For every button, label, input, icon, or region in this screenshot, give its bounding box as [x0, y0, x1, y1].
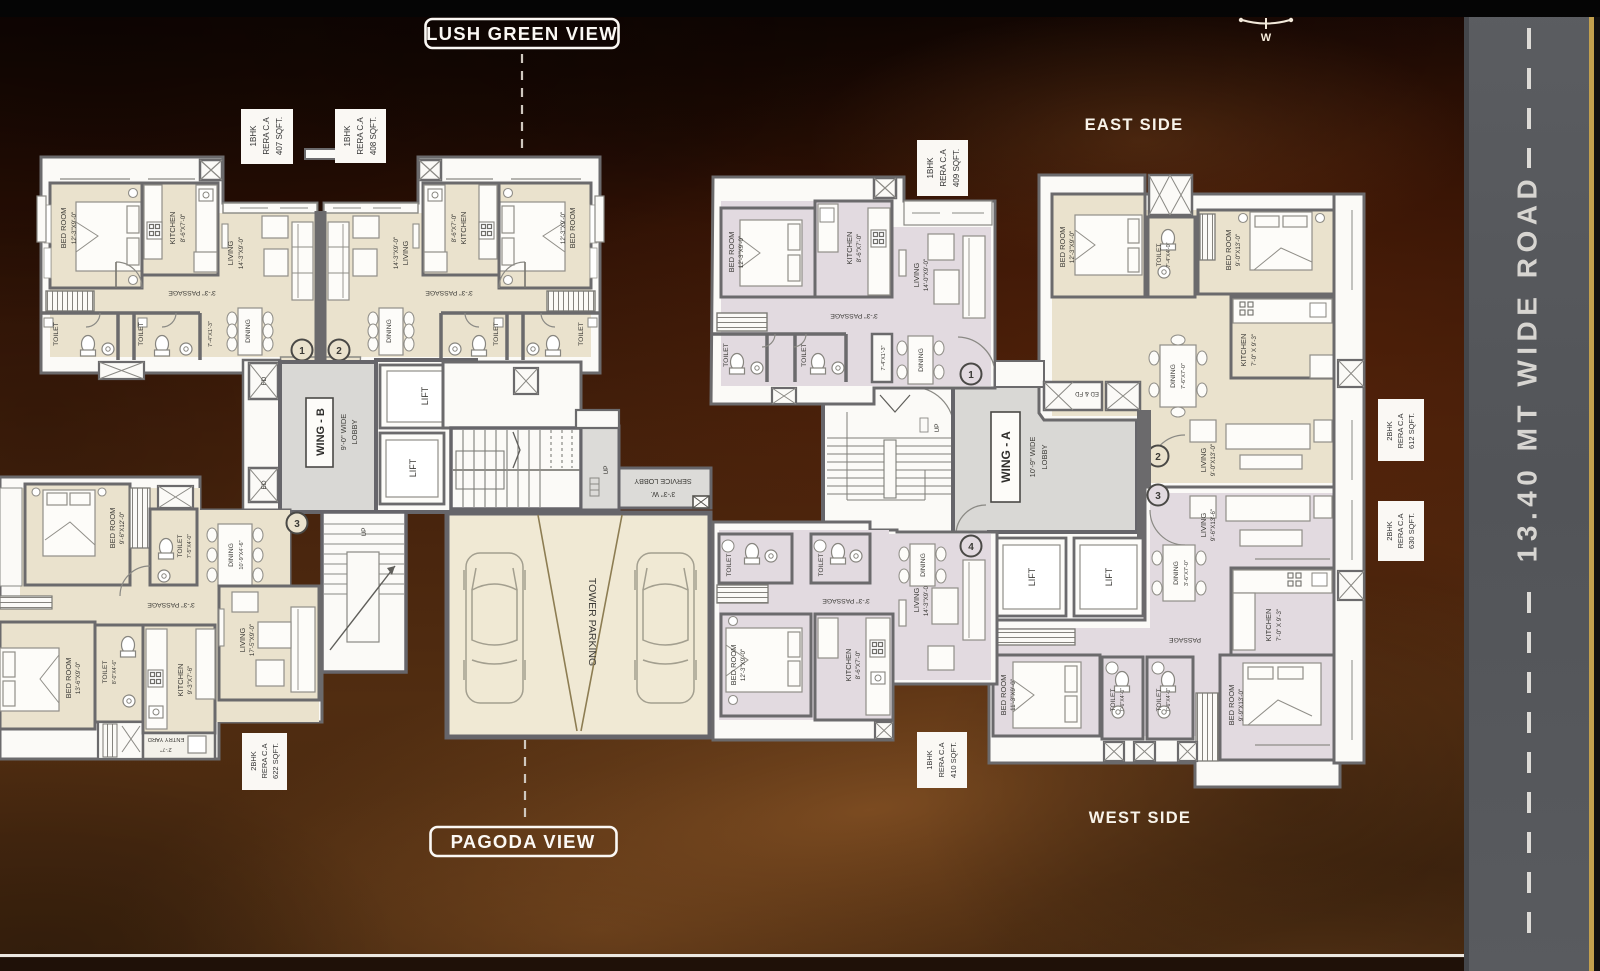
- svg-text:9'-0" WIDE: 9'-0" WIDE: [339, 414, 348, 451]
- svg-text:12'-3"X9'-0": 12'-3"X9'-0": [738, 236, 745, 268]
- svg-text:DINING: DINING: [386, 319, 393, 343]
- svg-text:13'-6"X9'-0": 13'-6"X9'-0": [75, 662, 82, 694]
- svg-text:409 SQFT.: 409 SQFT.: [952, 149, 961, 187]
- svg-text:13.40 MT WIDE ROAD: 13.40 MT WIDE ROAD: [1511, 174, 1542, 562]
- svg-text:8'-6"X7'-0": 8'-6"X7'-0": [855, 651, 862, 680]
- svg-text:3: 3: [294, 519, 300, 530]
- svg-text:7'-6"X4'-0": 7'-6"X4'-0": [1166, 688, 1172, 712]
- svg-text:RERA C.A: RERA C.A: [1396, 413, 1405, 448]
- svg-text:BED ROOM: BED ROOM: [568, 208, 577, 249]
- svg-text:2BHK: 2BHK: [249, 751, 258, 771]
- svg-text:ED: ED: [261, 480, 268, 489]
- svg-text:LIFT: LIFT: [1027, 567, 1037, 586]
- svg-text:LIFT: LIFT: [1104, 567, 1114, 586]
- svg-text:ED & FD: ED & FD: [1075, 390, 1099, 396]
- svg-text:2: 2: [336, 346, 342, 357]
- svg-text:BED ROOM: BED ROOM: [727, 232, 736, 273]
- svg-text:BED ROOM: BED ROOM: [1224, 230, 1233, 271]
- svg-text:RERA C.A: RERA C.A: [260, 743, 269, 778]
- svg-text:2BHK: 2BHK: [1385, 521, 1394, 541]
- svg-text:SERVICE LOBBY: SERVICE LOBBY: [634, 477, 692, 486]
- svg-text:1BHK: 1BHK: [926, 157, 935, 179]
- svg-text:WING - A: WING - A: [999, 431, 1013, 483]
- svg-text:3'-6"X7'-0": 3'-6"X7'-0": [1184, 560, 1190, 586]
- svg-text:TOILET: TOILET: [138, 322, 145, 346]
- svg-text:EAST SIDE: EAST SIDE: [1085, 116, 1184, 134]
- svg-text:LIVING: LIVING: [226, 241, 235, 266]
- svg-text:7'-4"X1'-3": 7'-4"X1'-3": [881, 345, 887, 370]
- svg-text:3'-3" PASSAGE: 3'-3" PASSAGE: [822, 597, 870, 604]
- svg-text:KITCHEN: KITCHEN: [845, 232, 854, 265]
- svg-text:RERA C.A: RERA C.A: [1396, 513, 1405, 548]
- svg-text:LIVING: LIVING: [238, 628, 247, 653]
- svg-text:LIVING: LIVING: [1199, 513, 1208, 538]
- svg-text:8'-6"X7'-0": 8'-6"X7'-0": [180, 214, 187, 243]
- svg-text:TOILET: TOILET: [1156, 244, 1163, 267]
- svg-text:WING - B: WING - B: [315, 408, 327, 456]
- svg-text:612 SQFT.: 612 SQFT.: [1407, 413, 1416, 449]
- svg-text:KITCHEN: KITCHEN: [459, 212, 468, 245]
- svg-text:TOILET: TOILET: [723, 343, 730, 367]
- svg-text:TOILET: TOILET: [801, 343, 808, 367]
- svg-text:11'-3"X9'-0": 11'-3"X9'-0": [1010, 679, 1017, 711]
- svg-text:9'-0"X13'-0": 9'-0"X13'-0": [1235, 234, 1242, 266]
- svg-text:TOILET: TOILET: [53, 322, 60, 346]
- svg-text:DINING: DINING: [918, 348, 925, 372]
- svg-text:W: W: [1261, 32, 1272, 44]
- svg-text:LUSH GREEN VIEW: LUSH GREEN VIEW: [426, 23, 618, 44]
- svg-text:14'-3"X9'-0": 14'-3"X9'-0": [923, 584, 930, 616]
- svg-text:TOILET: TOILET: [493, 322, 500, 346]
- svg-text:WEST SIDE: WEST SIDE: [1089, 809, 1191, 827]
- svg-text:7'-0" X 9'-3": 7'-0" X 9'-3": [1276, 609, 1283, 641]
- svg-text:12'-3"X9'-0": 12'-3"X9'-0": [1069, 231, 1076, 263]
- svg-text:KITCHEN: KITCHEN: [844, 649, 853, 682]
- svg-text:KITCHEN: KITCHEN: [1264, 609, 1273, 642]
- svg-text:BED ROOM: BED ROOM: [64, 658, 73, 699]
- svg-text:17'-5"X9'-0": 17'-5"X9'-0": [249, 624, 256, 656]
- svg-text:2BHK: 2BHK: [1385, 421, 1394, 441]
- svg-text:1: 1: [299, 346, 305, 357]
- svg-text:3'-3" PASSAGE: 3'-3" PASSAGE: [830, 312, 878, 319]
- svg-text:7'-6"X4'-0": 7'-6"X4'-0": [1120, 688, 1126, 712]
- svg-text:KITCHEN: KITCHEN: [168, 212, 177, 245]
- svg-text:630 SQFT.: 630 SQFT.: [1407, 513, 1416, 549]
- svg-text:RERA C.A: RERA C.A: [939, 149, 948, 187]
- svg-text:7'-4"X1'-3": 7'-4"X1'-3": [208, 321, 214, 347]
- svg-text:LIVING: LIVING: [1199, 448, 1208, 473]
- svg-text:PAGODA VIEW: PAGODA VIEW: [451, 831, 596, 852]
- svg-text:LIVING: LIVING: [912, 263, 921, 288]
- svg-text:12'-3"X9'-0": 12'-3"X9'-0": [740, 649, 747, 681]
- svg-text:8'-6"X7'-0": 8'-6"X7'-0": [451, 214, 458, 243]
- svg-text:UP: UP: [934, 423, 941, 432]
- svg-text:BED ROOM: BED ROOM: [1227, 685, 1236, 726]
- svg-text:1BHK: 1BHK: [925, 750, 934, 770]
- svg-text:RERA C.A: RERA C.A: [262, 117, 271, 155]
- svg-text:1BHK: 1BHK: [343, 125, 352, 147]
- svg-text:DINING: DINING: [245, 319, 252, 343]
- svg-text:TOILET: TOILET: [177, 535, 184, 558]
- svg-text:3'-3" W.: 3'-3" W.: [651, 490, 676, 499]
- svg-text:7'-4"X4'-0": 7'-4"X4'-0": [1166, 242, 1172, 267]
- svg-text:TOWER PARKING: TOWER PARKING: [586, 578, 598, 666]
- svg-text:TOILET: TOILET: [102, 661, 109, 684]
- svg-text:TOILET: TOILET: [726, 554, 733, 577]
- svg-text:12'-3"X9'-0": 12'-3"X9'-0": [560, 212, 567, 244]
- svg-text:9'-9"X13'-0": 9'-9"X13'-0": [1238, 689, 1245, 721]
- svg-text:10'-9"X4'-6": 10'-9"X4'-6": [239, 540, 245, 569]
- svg-text:3'-3" PASSAGE: 3'-3" PASSAGE: [147, 601, 195, 608]
- svg-text:3'-3" PASSAGE: 3'-3" PASSAGE: [425, 289, 473, 296]
- svg-text:LIVING: LIVING: [912, 588, 921, 613]
- svg-text:2'-7": 2'-7": [160, 746, 172, 752]
- svg-text:BED ROOM: BED ROOM: [1058, 227, 1067, 268]
- svg-text:7'-5"X4'-0": 7'-5"X4'-0": [187, 534, 193, 558]
- svg-text:DINING: DINING: [1173, 561, 1180, 585]
- svg-text:410 SQFT.: 410 SQFT.: [949, 742, 958, 778]
- svg-text:9'-6"X13'-6": 9'-6"X13'-6": [1210, 509, 1217, 541]
- svg-text:10'-9" WIDE: 10'-9" WIDE: [1028, 437, 1037, 478]
- svg-text:4: 4: [968, 542, 974, 553]
- svg-text:1: 1: [968, 370, 974, 381]
- svg-text:3: 3: [1155, 491, 1161, 502]
- svg-text:DINING: DINING: [1170, 364, 1177, 388]
- svg-text:KITCHEN: KITCHEN: [176, 664, 185, 697]
- svg-text:9'-0"X13'-0": 9'-0"X13'-0": [1210, 444, 1217, 476]
- svg-text:407 SQFT.: 407 SQFT.: [275, 117, 284, 155]
- svg-text:408 SQFT.: 408 SQFT.: [369, 117, 378, 155]
- svg-text:TOILET: TOILET: [818, 554, 825, 577]
- svg-text:1BHK: 1BHK: [249, 125, 258, 147]
- svg-text:14'-3"X9'-0": 14'-3"X9'-0": [238, 237, 245, 269]
- svg-text:LOBBY: LOBBY: [1040, 444, 1049, 469]
- svg-text:12'-3"X9'-0": 12'-3"X9'-0": [71, 212, 78, 244]
- svg-text:UP: UP: [361, 527, 368, 536]
- svg-text:BED ROOM: BED ROOM: [729, 645, 738, 686]
- svg-text:BED ROOM: BED ROOM: [999, 675, 1008, 716]
- svg-text:FD: FD: [261, 376, 268, 385]
- svg-text:TOILET: TOILET: [1156, 689, 1163, 712]
- svg-text:622 SQFT.: 622 SQFT.: [271, 743, 280, 779]
- svg-text:DINING: DINING: [228, 543, 235, 567]
- svg-text:7'-6"X7'-0": 7'-6"X7'-0": [1181, 363, 1187, 389]
- svg-text:ENTRY YARD: ENTRY YARD: [148, 736, 185, 742]
- svg-text:LOBBY: LOBBY: [350, 419, 359, 444]
- svg-text:LIFT: LIFT: [408, 458, 418, 477]
- svg-text:2: 2: [1155, 452, 1161, 463]
- svg-text:TOILET: TOILET: [1110, 689, 1117, 712]
- svg-text:UP: UP: [603, 465, 610, 474]
- svg-text:14'-3"X9'-0": 14'-3"X9'-0": [393, 237, 400, 269]
- svg-text:KITCHEN: KITCHEN: [1239, 334, 1248, 367]
- svg-text:PASSAGE: PASSAGE: [1169, 636, 1201, 643]
- svg-text:8'-6"X7'-0": 8'-6"X7'-0": [856, 234, 863, 263]
- svg-text:8'-0"X4'-6": 8'-0"X4'-6": [112, 660, 118, 684]
- svg-text:BED ROOM: BED ROOM: [59, 208, 68, 249]
- svg-text:LIVING: LIVING: [401, 241, 410, 266]
- svg-text:7'-0" X 9'-3": 7'-0" X 9'-3": [1251, 334, 1258, 366]
- svg-text:BED ROOM: BED ROOM: [108, 508, 117, 549]
- svg-text:TOILET: TOILET: [578, 322, 585, 346]
- svg-text:3'-3" PASSAGE: 3'-3" PASSAGE: [168, 289, 216, 296]
- svg-text:14'-0"X9'-0": 14'-0"X9'-0": [923, 259, 930, 291]
- svg-text:LIFT: LIFT: [420, 386, 430, 405]
- svg-text:RERA C.A: RERA C.A: [356, 117, 365, 155]
- svg-text:9'-3"X7'-6": 9'-3"X7'-6": [187, 666, 194, 695]
- svg-text:RERA C.A: RERA C.A: [937, 742, 946, 777]
- svg-text:9'-6"X12'-0": 9'-6"X12'-0": [119, 512, 126, 544]
- svg-text:DINING: DINING: [920, 553, 927, 577]
